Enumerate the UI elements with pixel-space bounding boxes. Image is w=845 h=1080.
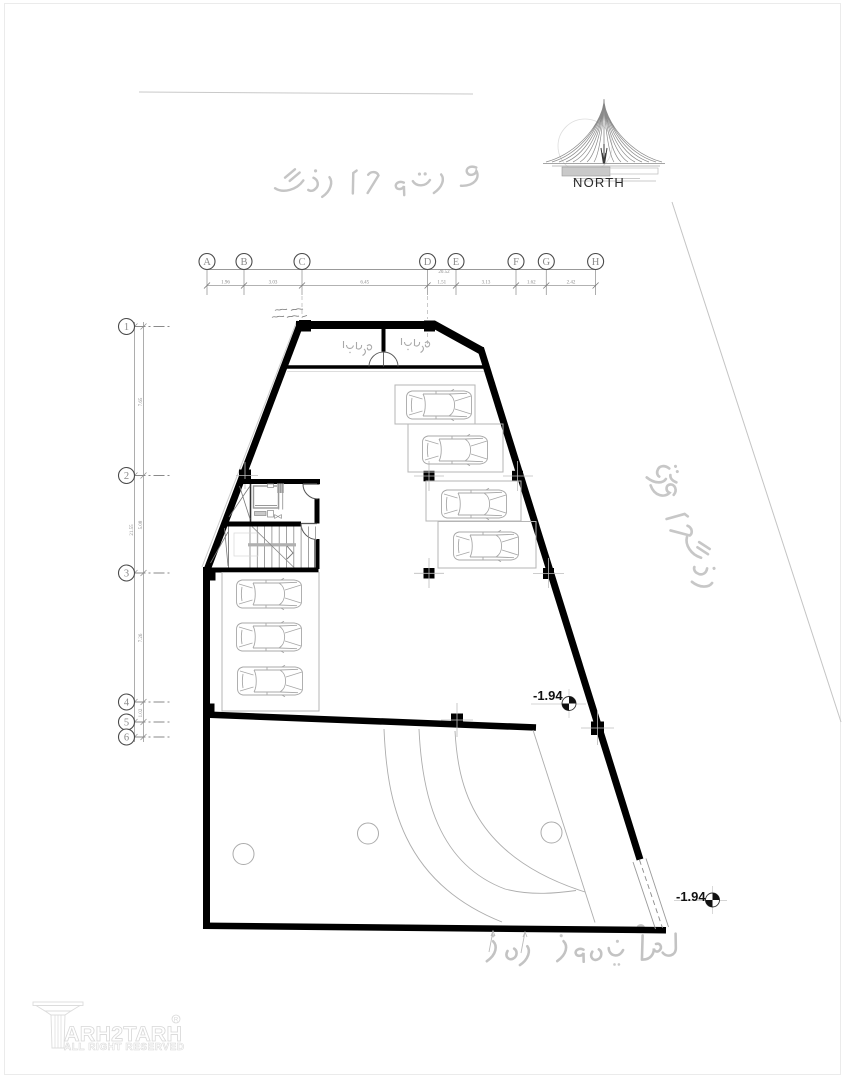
svg-text:2: 2 <box>124 471 129 482</box>
svg-text:1.96: 1.96 <box>221 281 230 286</box>
svg-text:1.02: 1.02 <box>139 708 144 717</box>
svg-text:-1.94: -1.94 <box>533 688 563 703</box>
svg-text:NORTH: NORTH <box>573 175 625 190</box>
svg-text:5.08: 5.08 <box>139 520 144 529</box>
svg-text:4: 4 <box>124 698 130 709</box>
svg-text:3.13: 3.13 <box>482 281 491 286</box>
svg-text:7.65: 7.65 <box>139 397 144 406</box>
svg-text:5: 5 <box>124 718 129 729</box>
svg-text:20.52: 20.52 <box>438 270 450 275</box>
svg-text:6.45: 6.45 <box>360 281 369 286</box>
svg-text:D: D <box>424 257 432 268</box>
svg-text:G: G <box>543 257 551 268</box>
svg-text:3: 3 <box>124 569 129 580</box>
svg-text:2.42: 2.42 <box>567 281 576 286</box>
svg-text:B: B <box>240 257 247 268</box>
svg-text:ALL RIGHT RESERVED: ALL RIGHT RESERVED <box>64 1042 185 1053</box>
svg-text:1.62: 1.62 <box>527 281 536 286</box>
svg-text:21.55: 21.55 <box>130 524 135 536</box>
svg-text:H: H <box>592 257 600 268</box>
svg-text:E: E <box>453 257 459 268</box>
svg-text:1.51: 1.51 <box>437 281 446 286</box>
svg-text:A: A <box>203 257 211 268</box>
svg-text:-1.94: -1.94 <box>676 889 706 904</box>
svg-text:F: F <box>513 257 519 268</box>
svg-text:1: 1 <box>124 322 129 333</box>
svg-text:R: R <box>174 1018 179 1024</box>
svg-text:6: 6 <box>124 733 129 744</box>
svg-text:3.03: 3.03 <box>269 281 278 286</box>
svg-text:C: C <box>298 257 305 268</box>
svg-text:7.26: 7.26 <box>139 633 144 642</box>
